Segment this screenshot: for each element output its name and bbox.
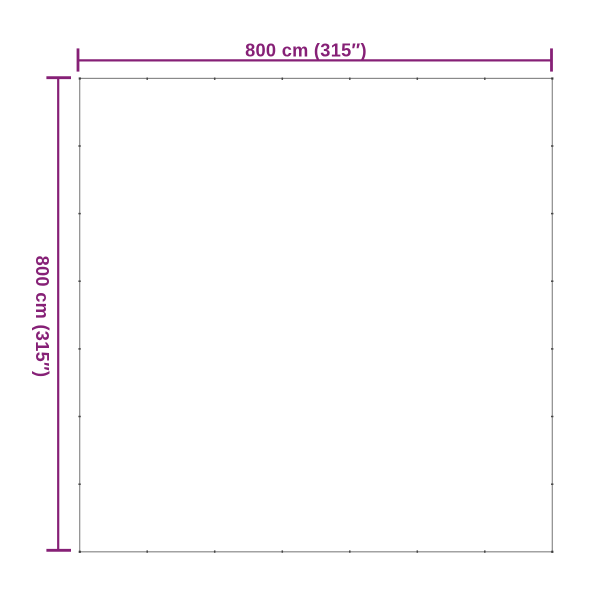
svg-text:800 cm (315″): 800 cm (315″) xyxy=(32,256,52,378)
svg-text:800 cm (315″): 800 cm (315″) xyxy=(245,41,367,61)
